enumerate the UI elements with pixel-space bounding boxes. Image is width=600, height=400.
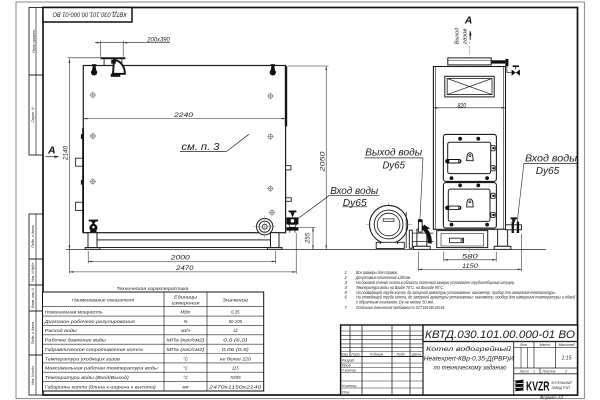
svg-text:KVZR: KVZR — [526, 379, 550, 393]
svg-text:Dy65: Dy65 — [536, 165, 560, 177]
svg-text:Рабочее давление воды: Рабочее давление воды — [45, 338, 107, 343]
svg-text:по техническому заданию: по техническому заданию — [434, 366, 507, 372]
svg-text:2240: 2240 — [173, 112, 194, 119]
svg-text:200х390: 200х390 — [146, 37, 170, 44]
svg-text:Выход: Выход — [455, 28, 461, 45]
svg-text:Температура уходящих газов: Температура уходящих газов — [45, 356, 121, 361]
svg-text:2050: 2050 — [320, 151, 326, 173]
svg-text:МВт: МВт — [180, 309, 190, 314]
svg-text:Техническая характеристика: Техническая характеристика — [117, 286, 189, 292]
svg-text:0,35: 0,35 — [231, 309, 240, 314]
svg-text:Вход воды: Вход воды — [525, 153, 577, 165]
svg-text:Формат А3: Формат А3 — [540, 395, 564, 400]
svg-text:Изм.: Изм. — [341, 352, 349, 356]
svg-text:Дата: Дата — [411, 352, 421, 356]
svg-text:Лит.: Лит. — [519, 343, 528, 347]
svg-text:115: 115 — [232, 366, 239, 371]
svg-text:N докум.: N докум. — [370, 352, 384, 356]
svg-text:%: % — [184, 319, 188, 324]
svg-text:2470х1150х2140: 2470х1150х2140 — [208, 384, 263, 389]
svg-text:Значение: Значение — [222, 298, 249, 303]
svg-text:Разраб.: Разраб. — [342, 359, 355, 363]
svg-text:МПа (кгс/см2): МПа (кгс/см2) — [167, 338, 206, 343]
svg-text:Лист: Лист — [519, 369, 529, 373]
svg-text:0,06 (0,6): 0,06 (0,6) — [222, 347, 250, 352]
svg-text:2000: 2000 — [169, 254, 190, 261]
svg-text:Пров.: Пров. — [342, 364, 352, 368]
svg-text:1150: 1150 — [462, 263, 478, 270]
svg-text:2: 2 — [564, 369, 567, 373]
svg-text:А: А — [47, 145, 56, 157]
svg-text:А: А — [464, 14, 473, 26]
svg-text:255: 255 — [306, 232, 312, 244]
svg-text:50-100: 50-100 — [229, 319, 243, 324]
svg-text:Подп. и дата: Подп. и дата — [31, 225, 35, 248]
svg-text:Гидравлическое сопротивление к: Гидравлическое сопротивление котла — [45, 347, 144, 352]
svg-text:КВТД.030.101.00.000-01 ВО: КВТД.030.101.00.000-01 ВО — [425, 329, 576, 341]
svg-text:Выход воды: Выход воды — [365, 146, 422, 158]
svg-text:Остальные технические требован: Остальные технические требования по ОСТ … — [356, 305, 445, 310]
svg-text:Перв. примен.: Перв. примен. — [32, 29, 36, 53]
svg-text:70/95: 70/95 — [230, 375, 241, 380]
svg-text:Номинальная мощность: Номинальная мощность — [45, 309, 104, 314]
svg-text:измерения: измерения — [172, 300, 201, 305]
svg-text:Котел водогрейный: Котел водогрейный — [426, 346, 512, 353]
svg-text:не более 220: не более 220 — [220, 356, 252, 361]
svg-text:газов: газов — [463, 28, 469, 44]
svg-text:0,6 (6,0): 0,6 (6,0) — [223, 338, 248, 343]
svg-text:Масса: Масса — [540, 343, 550, 347]
svg-text:м3/ч: м3/ч — [181, 328, 191, 333]
svg-text:Подп. и дата: Подп. и дата — [31, 322, 35, 345]
svg-text:Взам. инв. N: Взам. инв. N — [31, 288, 35, 308]
svg-text:Максимальная рабочая температу: Максимальная рабочая температура воды — [45, 366, 159, 371]
svg-text:Лист: Лист — [350, 352, 360, 356]
svg-text:2140: 2140 — [64, 145, 70, 161]
svg-text:КВТД.030.101.00.000-01 ВО: КВТД.030.101.00.000-01 ВО — [52, 10, 126, 16]
svg-text:Масштаб: Масштаб — [559, 343, 575, 347]
svg-text:820: 820 — [457, 102, 466, 109]
svg-text:Расход воды: Расход воды — [45, 328, 78, 333]
svg-text:КОТЕЛЬНЫЙ: КОТЕЛЬНЫЙ — [552, 381, 573, 385]
svg-text:Температура воды (Вход/Выход): Температура воды (Вход/Выход) — [45, 375, 130, 380]
svg-text:Единицы: Единицы — [174, 295, 198, 300]
svg-text:Наименование показателя: Наименование показателя — [72, 298, 135, 303]
svg-text:Подп.: Подп. — [396, 352, 405, 356]
svg-text:Н.контр.: Н.контр. — [342, 384, 358, 388]
svg-text:1:15: 1:15 — [561, 356, 571, 362]
svg-text:Утв.: Утв. — [342, 390, 350, 394]
svg-text:Т.контр.: Т.контр. — [342, 369, 357, 373]
svg-text:Инв. N дубл.: Инв. N дубл. — [31, 262, 35, 282]
svg-text:580: 580 — [462, 254, 478, 261]
svg-text:2470: 2470 — [175, 265, 194, 272]
svg-text:Инв. N подл.: Инв. N подл. — [31, 365, 35, 385]
svg-text:Листов: Листов — [541, 369, 555, 373]
svg-text:Габариты котла (длина х ширина: Габариты котла (длина х ширина х высота) — [45, 384, 157, 389]
svg-text:МПа (кгс/см2): МПа (кгс/см2) — [167, 347, 206, 352]
svg-text:Справ. N: Справ. N — [31, 107, 35, 122]
svg-text:ЗАВОД РЭП: ЗАВОД РЭП — [552, 386, 571, 390]
svg-text:мм: мм — [183, 384, 189, 389]
svg-text:12: 12 — [233, 328, 238, 333]
svg-text:Диапазон рабочего регулировани: Диапазон рабочего регулирования — [44, 319, 136, 324]
svg-text:Heatexpert-КВр-0,35-Д(РВР)И: Heatexpert-КВр-0,35-Д(РВР)И — [424, 355, 515, 362]
svg-text:1: 1 — [533, 369, 535, 373]
svg-text:Dy65: Dy65 — [382, 160, 405, 172]
svg-text:с обратным клапаном. Dу не мен: с обратным клапаном. Dу не менее 50 мм. — [356, 300, 434, 305]
